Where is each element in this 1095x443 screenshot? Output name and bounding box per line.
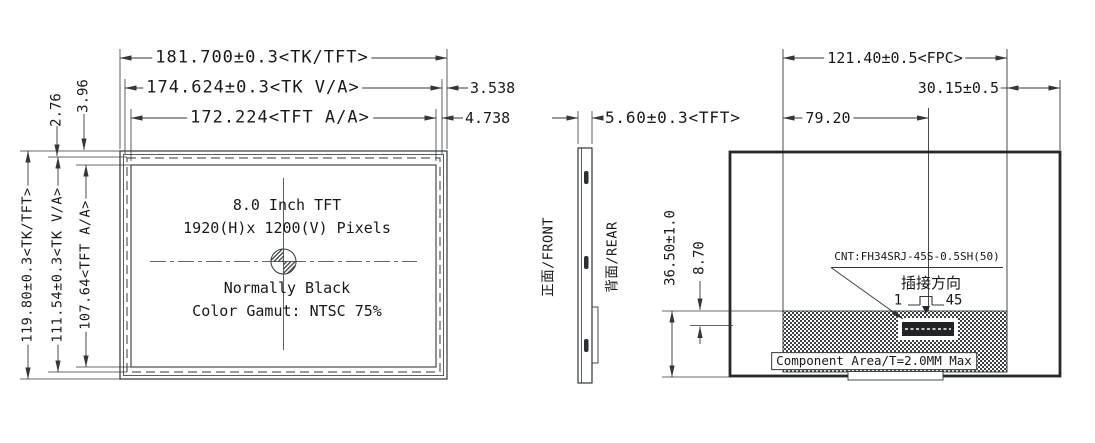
insertion-direction-label: 插接方向 — [901, 275, 961, 292]
dim-rear-connector-x: 79.20 — [802, 110, 853, 127]
side-rear-label: 背面/REAR — [606, 221, 621, 292]
side-view-dimensions — [552, 111, 602, 144]
dim-rear-fpc-width: 121.40±0.5<FPC> — [824, 50, 965, 67]
dim-front-height-va: 111.54±0.3<TK V/A> — [51, 185, 66, 344]
dim-front-top-offset-a: 3.96 — [76, 79, 91, 113]
side-view-outline — [578, 148, 598, 383]
dim-rear-component-height: 36.50±1.0 — [663, 210, 678, 286]
dim-front-height-tk: 119.80±0.3<TK/TFT> — [21, 185, 36, 344]
panel-spec-gamut: Color Gamut: NTSC 75% — [192, 303, 382, 320]
connector-part-number: CNT:FH34SRJ-45S-0.5SH(50) — [834, 251, 1000, 263]
dim-rear-connector-offset: 8.70 — [692, 241, 707, 275]
dim-front-right-offset-aa: 4.738 — [465, 110, 510, 127]
pin-45-label: 45 — [946, 293, 963, 308]
pin-1-label: 1 — [894, 293, 902, 308]
fpc-connector — [898, 318, 958, 340]
component-area-label: Component Area/T=2.0MM Max — [771, 352, 977, 370]
bottom-tab — [848, 372, 943, 381]
dim-side-thickness: 5.60±0.3<TFT> — [605, 109, 741, 127]
center-mark-icon — [271, 249, 296, 274]
dim-front-width-aa: 172.224<TFT A/A> — [187, 109, 373, 128]
dim-front-right-offset-va: 3.538 — [470, 80, 515, 97]
dim-front-width-va: 174.624±0.3<TK V/A> — [143, 79, 362, 98]
dim-rear-right-offset: 30.15±0.5 — [916, 80, 1001, 97]
dim-front-height-aa: 107.64<TFT A/A> — [79, 198, 94, 331]
panel-spec-size: 8.0 Inch TFT — [233, 197, 341, 214]
side-front-label: 正面/FRONT — [542, 217, 557, 297]
panel-spec-resolution: 1920(H)x 1200(V) Pixels — [183, 220, 391, 237]
technical-drawing: 181.700±0.3<TK/TFT> 174.624±0.3<TK V/A> … — [0, 0, 1095, 443]
dim-front-width-tk: 181.700±0.3<TK/TFT> — [152, 49, 371, 68]
panel-spec-mode: Normally Black — [224, 280, 350, 297]
dim-front-top-offset-b: 2.76 — [49, 93, 64, 127]
